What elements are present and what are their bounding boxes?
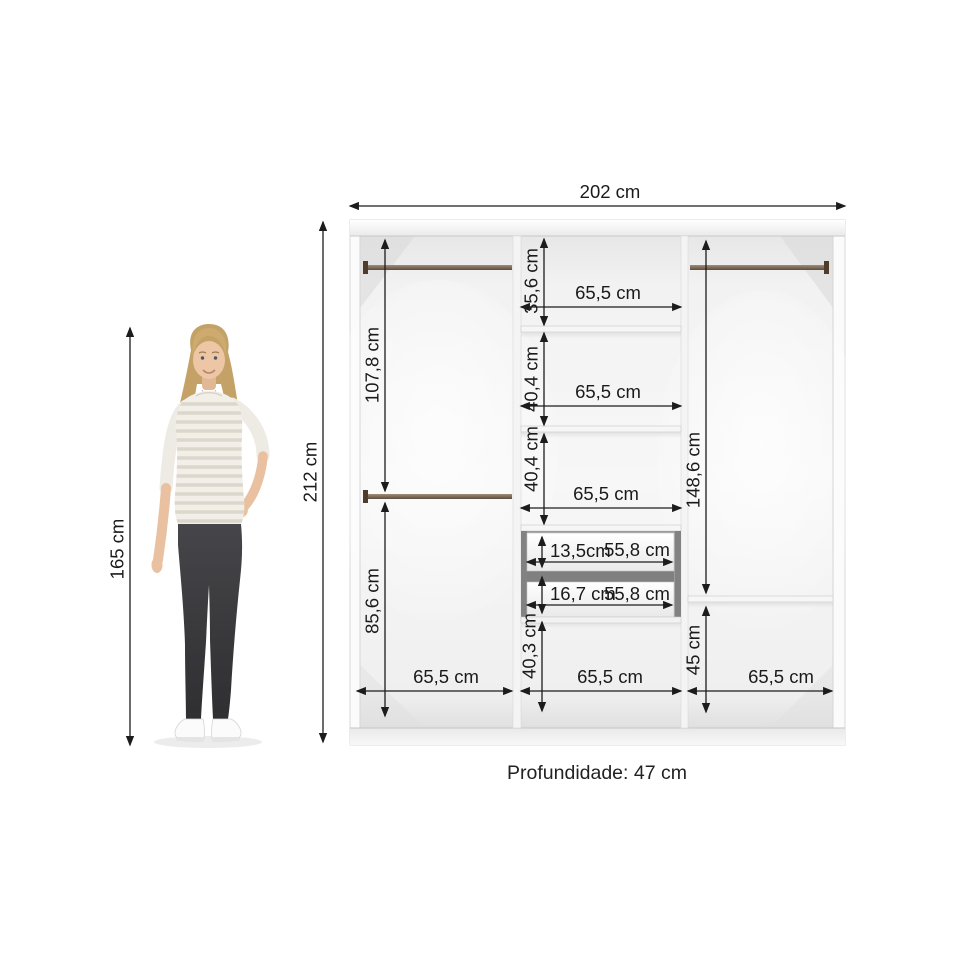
label-overall-height: 212 cm (299, 442, 320, 503)
floor-shadow (154, 736, 262, 748)
label-drawer2-width: 55,8 cm (604, 583, 670, 604)
right-shoe-sole (212, 737, 240, 741)
label-mid-third-width: 65,5 cm (573, 483, 639, 504)
dimension-overall-width: 202 cm (350, 181, 845, 206)
label-right-width: 65,5 cm (748, 666, 814, 687)
rod-left-upper-bracket (363, 261, 368, 274)
dimension-mid-second-height: 40,4 cm (520, 333, 544, 425)
right-shelf (688, 596, 833, 608)
rod-left-lower-bracket (363, 490, 368, 503)
label-mid-bottom-height: 40,3 cm (518, 613, 539, 679)
label-person-height: 165 cm (106, 519, 127, 580)
rod-right (690, 265, 825, 270)
rod-right-bracket (824, 261, 829, 274)
left-forearm (158, 488, 166, 560)
drawer-bottom-board (521, 617, 681, 623)
dimension-mid-top-height: 35,6 cm (520, 239, 544, 325)
interior-floor-shadow (360, 698, 833, 728)
right-forearm (241, 456, 263, 510)
label-left-upper: 107,8 cm (361, 327, 382, 403)
diagram-svg: 202 cm 212 cm 165 cm 107,8 cm 85,6 cm 65… (0, 0, 960, 960)
left-hand (152, 557, 163, 573)
base-panel (350, 728, 845, 745)
label-drawer1-height: 13,5cm (550, 540, 611, 561)
top-panel (350, 220, 845, 236)
label-right-lower: 45 cm (682, 625, 703, 675)
rod-left-upper (366, 265, 512, 270)
label-right-upper: 148,6 cm (682, 432, 703, 508)
left-shoe-sole (176, 737, 204, 741)
label-mid-second-width: 65,5 cm (575, 381, 641, 402)
dimension-overall-height: 212 cm (299, 222, 323, 742)
label-mid-top-width: 65,5 cm (575, 282, 641, 303)
label-mid-top-height: 35,6 cm (520, 248, 541, 314)
label-overall-width: 202 cm (580, 181, 641, 202)
label-mid-third-height: 40,4 cm (520, 426, 541, 492)
wardrobe-dimension-diagram-page: 202 cm 212 cm 165 cm 107,8 cm 85,6 cm 65… (0, 0, 960, 960)
drawer-gap (527, 571, 674, 582)
dimension-person-height: 165 cm (106, 328, 130, 745)
label-left-lower: 85,6 cm (361, 568, 382, 634)
label-left-width: 65,5 cm (413, 666, 479, 687)
depth-label: Profundidade: 47 cm (507, 762, 687, 784)
person-figure (152, 324, 264, 748)
label-drawer1-width: 55,8 cm (604, 539, 670, 560)
label-mid-bottom-width: 65,5 cm (577, 666, 643, 687)
rod-left-lower (366, 494, 512, 499)
pants (178, 524, 242, 719)
label-mid-second-height: 40,4 cm (520, 346, 541, 412)
